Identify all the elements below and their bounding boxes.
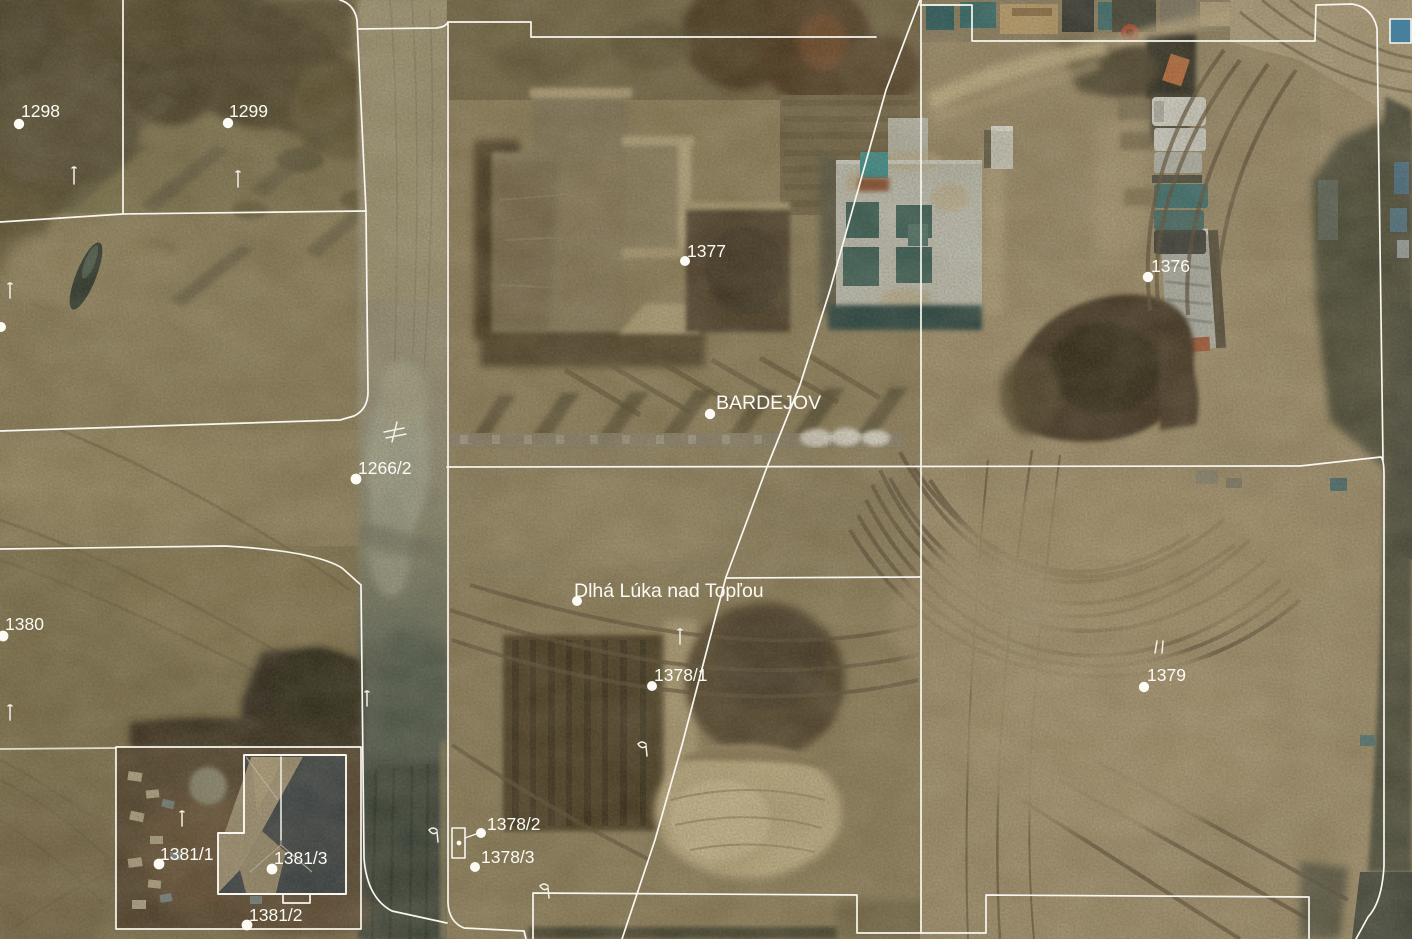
svg-text:1378/3: 1378/3 [481,847,535,867]
svg-text:BARDEJOV: BARDEJOV [716,392,821,414]
svg-text:1379: 1379 [1147,665,1186,685]
svg-text:1381/1: 1381/1 [160,844,214,864]
svg-text:1380: 1380 [5,614,44,634]
svg-text:1378/2: 1378/2 [487,814,541,834]
svg-text:1381/2: 1381/2 [249,905,303,925]
svg-text:1299: 1299 [229,101,268,121]
svg-text:Dlhá Lúka nad Topľou: Dlhá Lúka nad Topľou [574,580,764,602]
svg-text:1266/2: 1266/2 [358,458,412,478]
svg-text:1378/1: 1378/1 [654,665,708,685]
svg-text:1377: 1377 [687,241,726,261]
svg-text:1376: 1376 [1151,256,1190,276]
svg-text:1381/3: 1381/3 [274,848,328,868]
svg-text:1298: 1298 [21,101,60,121]
